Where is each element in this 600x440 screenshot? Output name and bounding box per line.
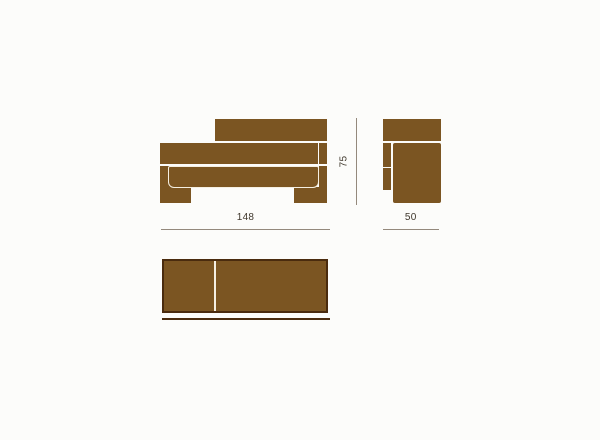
dimension-height-line: [356, 118, 357, 205]
top-view-surface: [162, 259, 328, 313]
furniture-dimension-diagram: 148 50 75: [0, 0, 600, 440]
dimension-width-label: 148: [161, 212, 330, 223]
side-backrest-strip-upper: [383, 143, 391, 167]
front-backrest-panel: [215, 119, 327, 141]
side-backrest-strip-lower: [383, 168, 391, 190]
front-right-side-panel-lower: [319, 166, 327, 187]
dimension-width-line: [161, 229, 330, 230]
dimension-depth-label: 50: [383, 212, 439, 223]
side-top-panel: [383, 119, 441, 141]
front-right-side-panel-upper: [319, 143, 327, 165]
dimension-depth-line: [383, 229, 439, 230]
dimension-height-label: 75: [339, 148, 350, 176]
front-seat-base-panel: [168, 166, 319, 188]
top-view-back-edge-line: [162, 318, 330, 320]
side-seat-panel: [393, 143, 442, 203]
front-seat-upper-panel: [160, 143, 318, 165]
front-right-leg: [294, 187, 328, 203]
top-view-section-divider: [214, 261, 216, 311]
